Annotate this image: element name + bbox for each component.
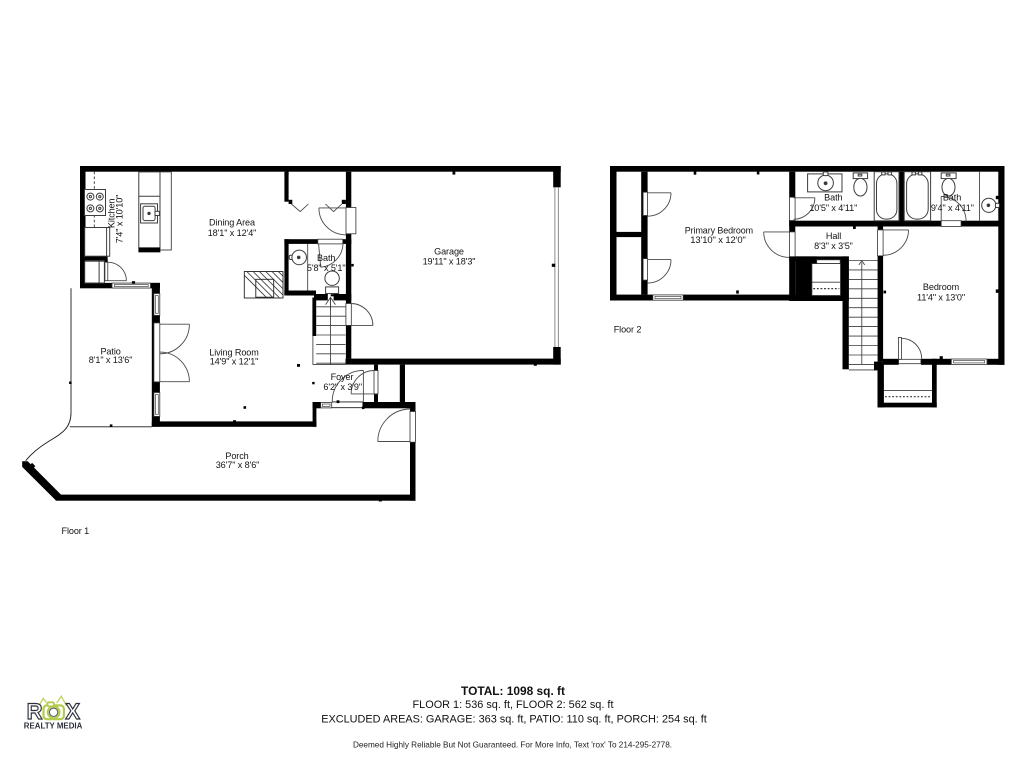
svg-text:Hall: Hall	[826, 231, 841, 241]
svg-text:14'9" x 12'1": 14'9" x 12'1"	[210, 356, 259, 366]
svg-text:R: R	[27, 699, 43, 724]
svg-text:10'5" x 4'11": 10'5" x 4'11"	[809, 203, 857, 213]
svg-text:Foyer: Foyer	[331, 372, 354, 382]
svg-text:Dining Area: Dining Area	[209, 218, 256, 228]
svg-text:19'11" x 18'3": 19'11" x 18'3"	[423, 257, 476, 267]
svg-text:13'10" x 12'0": 13'10" x 12'0"	[690, 235, 746, 245]
svg-text:9'4" x 4'11": 9'4" x 4'11"	[931, 203, 974, 213]
svg-text:Bath: Bath	[317, 253, 335, 263]
svg-text:6'2" x 3'9": 6'2" x 3'9"	[323, 382, 362, 392]
svg-text:18'1" x 12'4": 18'1" x 12'4"	[208, 228, 257, 238]
svg-text:Bath: Bath	[824, 192, 842, 202]
svg-text:8'3" x 3'5": 8'3" x 3'5"	[814, 241, 853, 251]
svg-text:Floor 1: Floor 1	[62, 526, 90, 536]
svg-text:REALTY MEDIA: REALTY MEDIA	[24, 722, 83, 731]
svg-text:Deemed Highly Reliable But Not: Deemed Highly Reliable But Not Guarantee…	[353, 741, 672, 750]
svg-text:7'4" x 10'10": 7'4" x 10'10"	[114, 195, 124, 244]
svg-text:Floor 2: Floor 2	[614, 324, 642, 334]
svg-text:Bedroom: Bedroom	[923, 282, 959, 292]
svg-text:TOTAL: 1098 sq. ft: TOTAL: 1098 sq. ft	[461, 684, 565, 698]
svg-text:Bath: Bath	[943, 192, 961, 202]
svg-text:X: X	[65, 699, 80, 724]
svg-text:8'1" x 13'6": 8'1" x 13'6"	[89, 355, 133, 365]
svg-text:Garage: Garage	[434, 246, 464, 256]
svg-text:36'7" x 8'6": 36'7" x 8'6"	[216, 460, 260, 470]
svg-text:EXCLUDED AREAS: GARAGE: 363 sq: EXCLUDED AREAS: GARAGE: 363 sq. ft, PATI…	[321, 713, 707, 725]
svg-text:FLOOR 1: 536 sq. ft, FLOOR 2:: FLOOR 1: 536 sq. ft, FLOOR 2: 562 sq. ft	[413, 699, 614, 711]
svg-text:11'4" x 13'0": 11'4" x 13'0"	[917, 292, 965, 302]
svg-text:5'8" x 5'1": 5'8" x 5'1"	[307, 263, 346, 273]
